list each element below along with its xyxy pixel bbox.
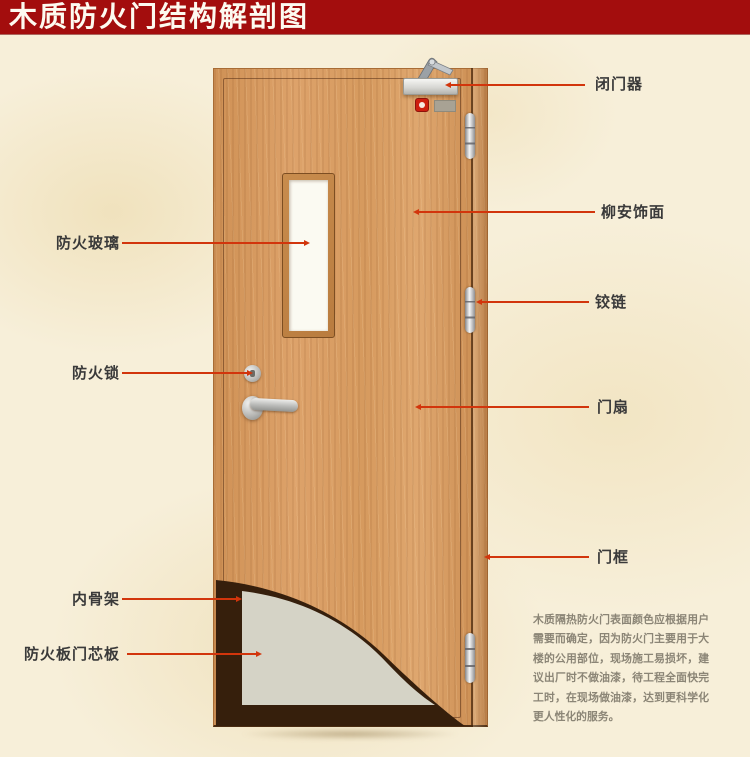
leader-line-inner-skeleton — [122, 598, 237, 600]
leader-line-veneer — [418, 211, 595, 213]
label-fire-lock: 防火锁 — [18, 364, 120, 384]
label-door-closer: 闭门器 — [595, 75, 643, 95]
label-door-frame: 门框 — [597, 548, 629, 568]
door-handle-lever — [250, 398, 299, 412]
door-frame-strip — [473, 68, 488, 727]
leader-line-door-closer — [450, 84, 585, 86]
fire-door-illustration — [213, 68, 488, 727]
leader-line-door-leaf — [420, 406, 589, 408]
label-fire-glass: 防火玻璃 — [18, 234, 120, 254]
diagram-canvas: 木质防火门结构解剖图 — [0, 0, 750, 757]
door-shadow — [198, 726, 502, 742]
description-paragraph: 木质隔热防火门表面颜色应根据用户需要而确定，因为防火门主要用于大楼的公用部位，现… — [533, 611, 709, 727]
fire-glass-pane — [289, 180, 328, 331]
label-veneer: 柳安饰面 — [601, 203, 665, 223]
door-frame-seam — [471, 68, 473, 727]
leader-line-core-board — [127, 653, 257, 655]
leader-line-fire-lock — [122, 372, 248, 374]
hinge-middle — [465, 287, 475, 333]
window-frame — [282, 173, 335, 338]
label-hinge: 铰链 — [595, 293, 627, 313]
leader-line-fire-glass — [122, 242, 305, 244]
hinge-top — [465, 113, 475, 159]
red-indicator-badge — [415, 98, 429, 112]
page-title: 木质防火门结构解剖图 — [9, 1, 309, 33]
hinge-bottom — [465, 633, 475, 683]
leader-line-hinge — [481, 301, 589, 303]
label-core-board: 防火板门芯板 — [18, 645, 120, 665]
label-door-leaf: 门扇 — [597, 398, 629, 418]
leader-line-door-frame — [489, 556, 589, 558]
name-plate — [434, 100, 456, 112]
title-banner: 木质防火门结构解剖图 — [0, 0, 750, 34]
label-inner-skeleton: 内骨架 — [18, 590, 120, 610]
